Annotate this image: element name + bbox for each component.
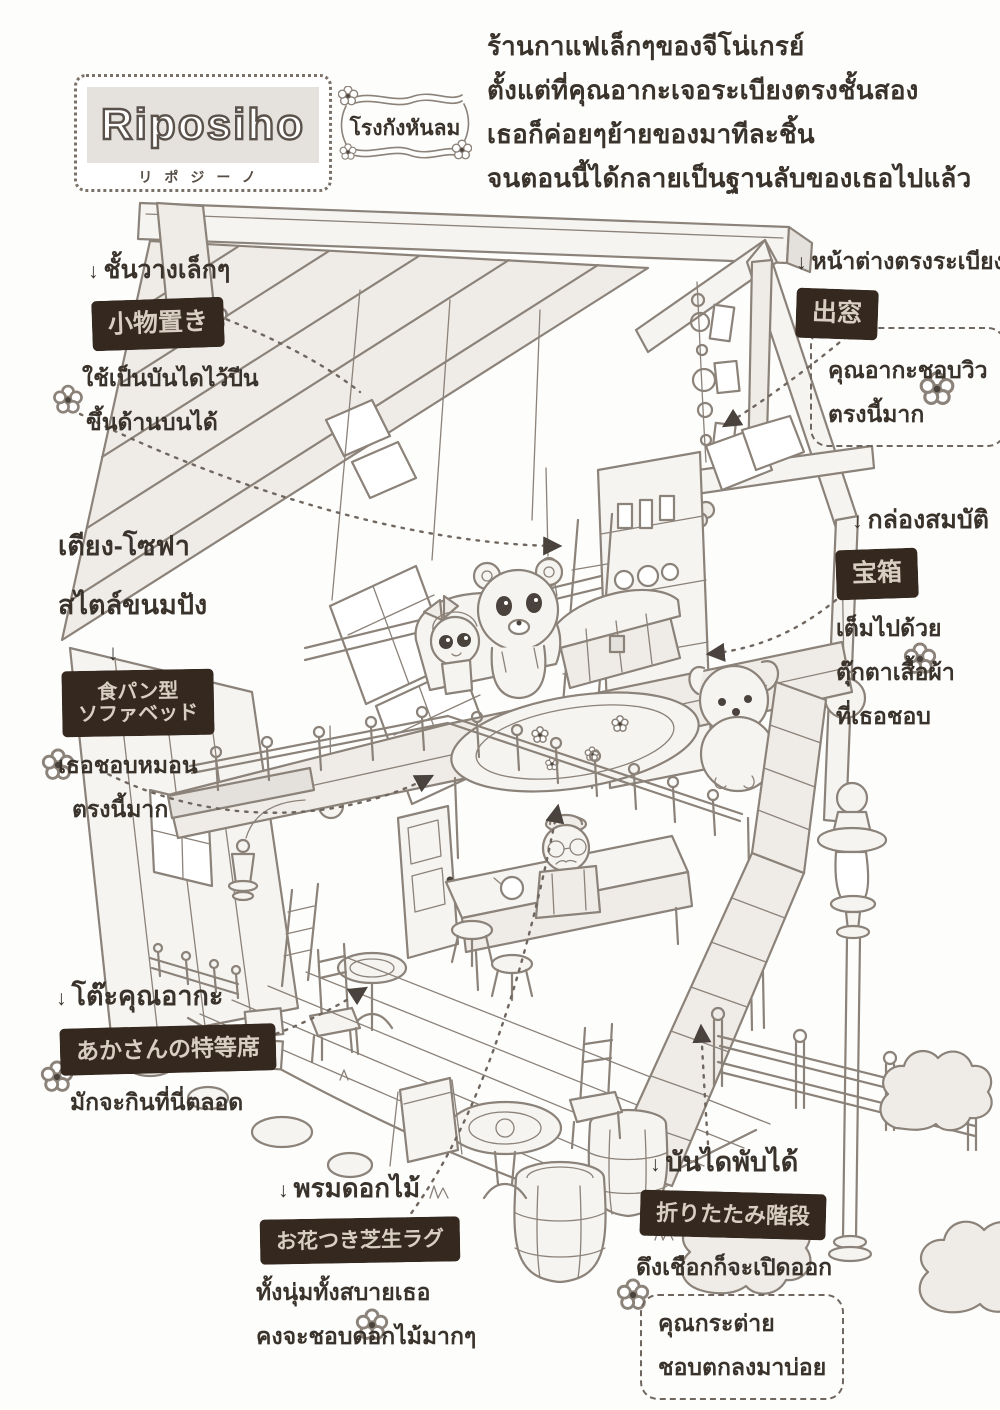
intro-line: จนตอนนี้ได้กลายเป็นฐานลับของเธอไปแล้ว — [487, 156, 971, 200]
logo-title: Riposiho — [101, 100, 305, 150]
stamp-stairs: 折りたたみ階段 — [639, 1190, 826, 1241]
annotation-title-text: บันไดพับได้ — [666, 1147, 799, 1177]
down-arrow-icon: ↓ — [650, 1153, 661, 1176]
annotation-title: ↓โต๊ะคุณอากะ — [56, 974, 276, 1017]
stamp-window: 出窓 — [795, 288, 879, 340]
down-arrow-icon: ↓ — [278, 1179, 289, 1202]
stamp-treasure: 宝箱 — [835, 548, 919, 600]
intro-line: ตั้งแต่ที่คุณอากะเจอระเบียงตรงชั้นสอง — [487, 68, 971, 112]
stairs-note-box: คุณกระต่าย ชอบตกลงมาบ่อย — [640, 1294, 844, 1400]
stamp-table: あかさんの特等席 — [59, 1023, 276, 1076]
down-arrow-icon: ↓ — [88, 260, 99, 283]
annotation-title: สไตล์ขนมปัง — [58, 583, 238, 626]
annotation-title: ↓กล่องสมบัติ — [852, 500, 989, 540]
stamp-rug: お花つき芝生ラグ — [260, 1216, 461, 1265]
annotation-title-text: พรมดอกไม้ — [294, 1173, 421, 1203]
annotation-title: ↓พรมดอกไม้ — [278, 1168, 476, 1209]
annotation-title-text: โต๊ะคุณอากะ — [72, 981, 224, 1011]
intro-line: เธอก็ค่อยๆย้ายของมาทีละชิ้น — [487, 112, 971, 156]
annotation-title: ↓ชั้นวางเล็กๆ — [88, 250, 259, 290]
logo-frame: Riposiho リポジーノ — [74, 74, 332, 192]
annotation-line: คุณอากะชอบวิว — [828, 353, 988, 389]
down-arrow-icon: ↓ — [56, 987, 67, 1010]
annotation-title: ↓บันไดพับได้ — [650, 1140, 844, 1183]
intro-paragraph: ร้านกาแฟเล็กๆของจีโน่เกรย์ ตั้งแต่ที่คุณ… — [487, 24, 971, 200]
annotation-line: ดึงเชือกก็จะเปิดออก — [636, 1250, 844, 1286]
annotation-title-text: ชั้นวางเล็กๆ — [104, 256, 231, 284]
logo-subtitle: リポジーノ — [77, 167, 329, 187]
annotation-line: ใช้เป็นบันไดไว้ปีน — [82, 361, 259, 397]
annotation-line: ชอบตกลงมาบ่อย — [658, 1350, 826, 1386]
stamp-sofa: 食パン型 ソファベッド — [61, 669, 214, 738]
annotation-title-text: หน้าต่างตรงระเบียง — [812, 248, 1000, 274]
stamp-line: 食パン型 — [78, 680, 198, 704]
annotation-line: เธอชอบหมอน — [58, 748, 238, 784]
window-note-box: คุณอากะชอบวิว ตรงนี้มาก — [810, 327, 1000, 447]
annotation-window: ↓หน้าต่างตรงระเบียง 出窓 คุณอากะชอบวิว ตรง… — [796, 244, 1000, 447]
down-arrow-icon: ↓ — [58, 640, 168, 666]
annotation-sofa: เตียง-โซฟา สไตล์ขนมปัง ↓ 食パン型 ソファベッド เธอ… — [58, 524, 238, 828]
annotation-line: ตรงนี้มาก — [72, 792, 238, 828]
annotation-line: ขึ้นด้านบนได้ — [86, 405, 259, 441]
annotation-line: ทั้งนุ่มทั้งสบายเธอ — [256, 1275, 476, 1311]
annotation-line: ตุ๊กตาเสื้อผ้า — [836, 655, 989, 691]
annotation-treasure: ↓กล่องสมบัติ 宝箱 เต็มไปด้วย ตุ๊กตาเสื้อผ้… — [836, 500, 989, 735]
annotation-line: คุณกระต่าย — [658, 1306, 826, 1342]
annotation-line: ที่เธอชอบ — [836, 699, 989, 735]
annotation-shelf: ↓ชั้นวางเล็กๆ 小物置き ใช้เป็นบันไดไว้ปีน ขึ… — [88, 250, 259, 441]
stamp-shelf: 小物置き — [91, 297, 225, 351]
annotation-line: เต็มไปด้วย — [836, 611, 989, 647]
stamp-line: ソファベッド — [78, 702, 198, 726]
intro-line: ร้านกาแฟเล็กๆของจีโน่เกรย์ — [487, 24, 971, 68]
annotation-line: มักจะกินที่นี่ตลอด — [70, 1085, 276, 1121]
manga-concept-page: Riposiho リポジーノ — [0, 0, 1000, 1410]
annotation-line: ตรงนี้มาก — [828, 397, 988, 433]
annotation-table: ↓โต๊ะคุณอากะ あかさんの特等席 มักจะกินที่นี่ตลอด — [56, 974, 276, 1121]
logo-tagline: โรงกังหันลม — [338, 112, 472, 145]
annotation-title: ↓หน้าต่างตรงระเบียง — [796, 244, 1000, 280]
tagline-frame: โรงกังหันลม — [338, 86, 472, 164]
annotation-rug: ↓พรมดอกไม้ お花つき芝生ラグ ทั้งนุ่มทั้งสบายเธอ … — [256, 1168, 476, 1355]
annotation-title: เตียง-โซฟา — [58, 524, 238, 567]
down-arrow-icon: ↓ — [796, 251, 807, 274]
annotation-line: คงจะชอบดอกไม้มากๆ — [256, 1319, 476, 1355]
annotation-stairs: ↓บันไดพับได้ 折りたたみ階段 ดึงเชือกก็จะเปิดออก… — [636, 1140, 844, 1400]
annotation-title-text: กล่องสมบัติ — [868, 506, 990, 534]
down-arrow-icon: ↓ — [852, 510, 863, 533]
logo-background: Riposiho — [87, 87, 319, 163]
